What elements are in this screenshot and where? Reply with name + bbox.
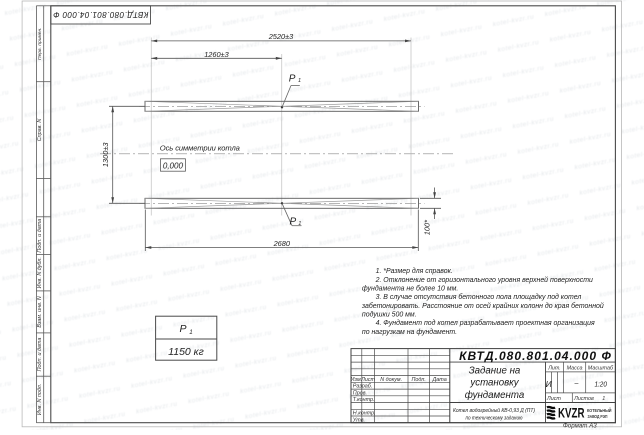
- svg-text:Лист: Лист: [360, 377, 375, 383]
- svg-text:Утв.: Утв.: [352, 417, 365, 423]
- svg-text:1: 1: [298, 221, 301, 227]
- svg-text:Т.контр.: Т.контр.: [353, 397, 375, 403]
- svg-text:Задание на: Задание на: [469, 366, 521, 377]
- svg-text:2520±3: 2520±3: [268, 32, 294, 41]
- svg-text:2. Отклонение от горизонтально: 2. Отклонение от горизонтального уровня …: [375, 276, 593, 284]
- svg-text:Пров.: Пров.: [353, 390, 367, 396]
- svg-text:1150 кг: 1150 кг: [168, 346, 204, 358]
- svg-text:Лит.: Лит.: [547, 366, 561, 372]
- svg-text:фундамента: фундамента: [465, 390, 525, 401]
- svg-text:подушки 500 мм.: подушки 500 мм.: [362, 310, 417, 318]
- svg-text:Лист: Лист: [546, 396, 561, 402]
- svg-text:1:20: 1:20: [594, 379, 607, 388]
- svg-text:И: И: [546, 379, 553, 389]
- svg-text:ЗАВОД РЭП: ЗАВОД РЭП: [588, 414, 608, 419]
- svg-text:Перв. примен.: Перв. примен.: [37, 27, 43, 60]
- svg-text:Инв. N подл.: Инв. N подл.: [37, 384, 43, 416]
- svg-text:забетонировать. Расстояние от: забетонировать. Расстояние от осей крайн…: [361, 302, 604, 310]
- svg-text:4. Фундамент под котел разраба: 4. Фундамент под котел разрабатывает про…: [376, 319, 595, 327]
- svg-text:Разраб.: Разраб.: [353, 384, 373, 390]
- svg-text:1300±3: 1300±3: [101, 142, 110, 167]
- svg-text:Инв. N дубл.: Инв. N дубл.: [37, 257, 43, 288]
- svg-text:Подп. и дата: Подп. и дата: [37, 338, 43, 372]
- svg-text:–: –: [574, 381, 579, 388]
- svg-text:P: P: [290, 216, 297, 227]
- svg-text:100*: 100*: [423, 219, 432, 235]
- svg-text:по техническому заданию: по техническому заданию: [466, 416, 523, 422]
- svg-text:Н.контр.: Н.контр.: [353, 411, 376, 417]
- svg-text:КВТД.080.801.04.000 Ф: КВТД.080.801.04.000 Ф: [459, 349, 612, 363]
- svg-text:Взам. инв. N: Взам. инв. N: [37, 296, 43, 328]
- svg-text:0,000: 0,000: [163, 162, 184, 171]
- svg-text:1. *Размер для справок.: 1. *Размер для справок.: [376, 267, 453, 275]
- svg-text:Листов: Листов: [573, 396, 594, 402]
- svg-text:Дата: Дата: [431, 377, 446, 383]
- svg-text:Масштаб: Масштаб: [588, 366, 614, 372]
- svg-text:Подп. и дата: Подп. и дата: [37, 219, 43, 253]
- svg-text:P: P: [289, 74, 296, 85]
- svg-text:Котел водогрейный КВ-0,93 Д (: Котел водогрейный КВ-0,93 Д (ПТ): [453, 407, 535, 414]
- svg-text:установку: установку: [469, 378, 519, 389]
- svg-text:Ось симметрии котла: Ось симметрии котла: [160, 143, 240, 152]
- svg-text:КВТД.080.801.04.000 Ф: КВТД.080.801.04.000 Ф: [53, 10, 149, 19]
- svg-text:KVZR: KVZR: [558, 405, 585, 421]
- svg-text:1: 1: [189, 329, 192, 336]
- svg-text:Подп.: Подп.: [412, 377, 426, 383]
- svg-text:фундамента не более 10 мм.: фундамента не более 10 мм.: [362, 284, 458, 292]
- svg-text:N докум.: N докум.: [380, 377, 402, 383]
- svg-text:1260±3: 1260±3: [204, 50, 229, 59]
- svg-text:Формат А3: Формат А3: [563, 423, 597, 430]
- svg-text:1: 1: [602, 396, 605, 402]
- svg-text:2680: 2680: [273, 239, 291, 248]
- svg-text:Справ. N: Справ. N: [37, 119, 43, 142]
- svg-text:Масса: Масса: [567, 366, 583, 372]
- svg-text:КОТЕЛЬНЫЙ: КОТЕЛЬНЫЙ: [587, 406, 612, 413]
- svg-text:P: P: [179, 323, 186, 335]
- svg-text:1: 1: [298, 78, 301, 84]
- svg-text:3. В случае отсутствия бетонно: 3. В случае отсутствия бетонного пола пл…: [376, 293, 582, 301]
- svg-text:по нагрузкам на фундамент.: по нагрузкам на фундамент.: [362, 328, 457, 336]
